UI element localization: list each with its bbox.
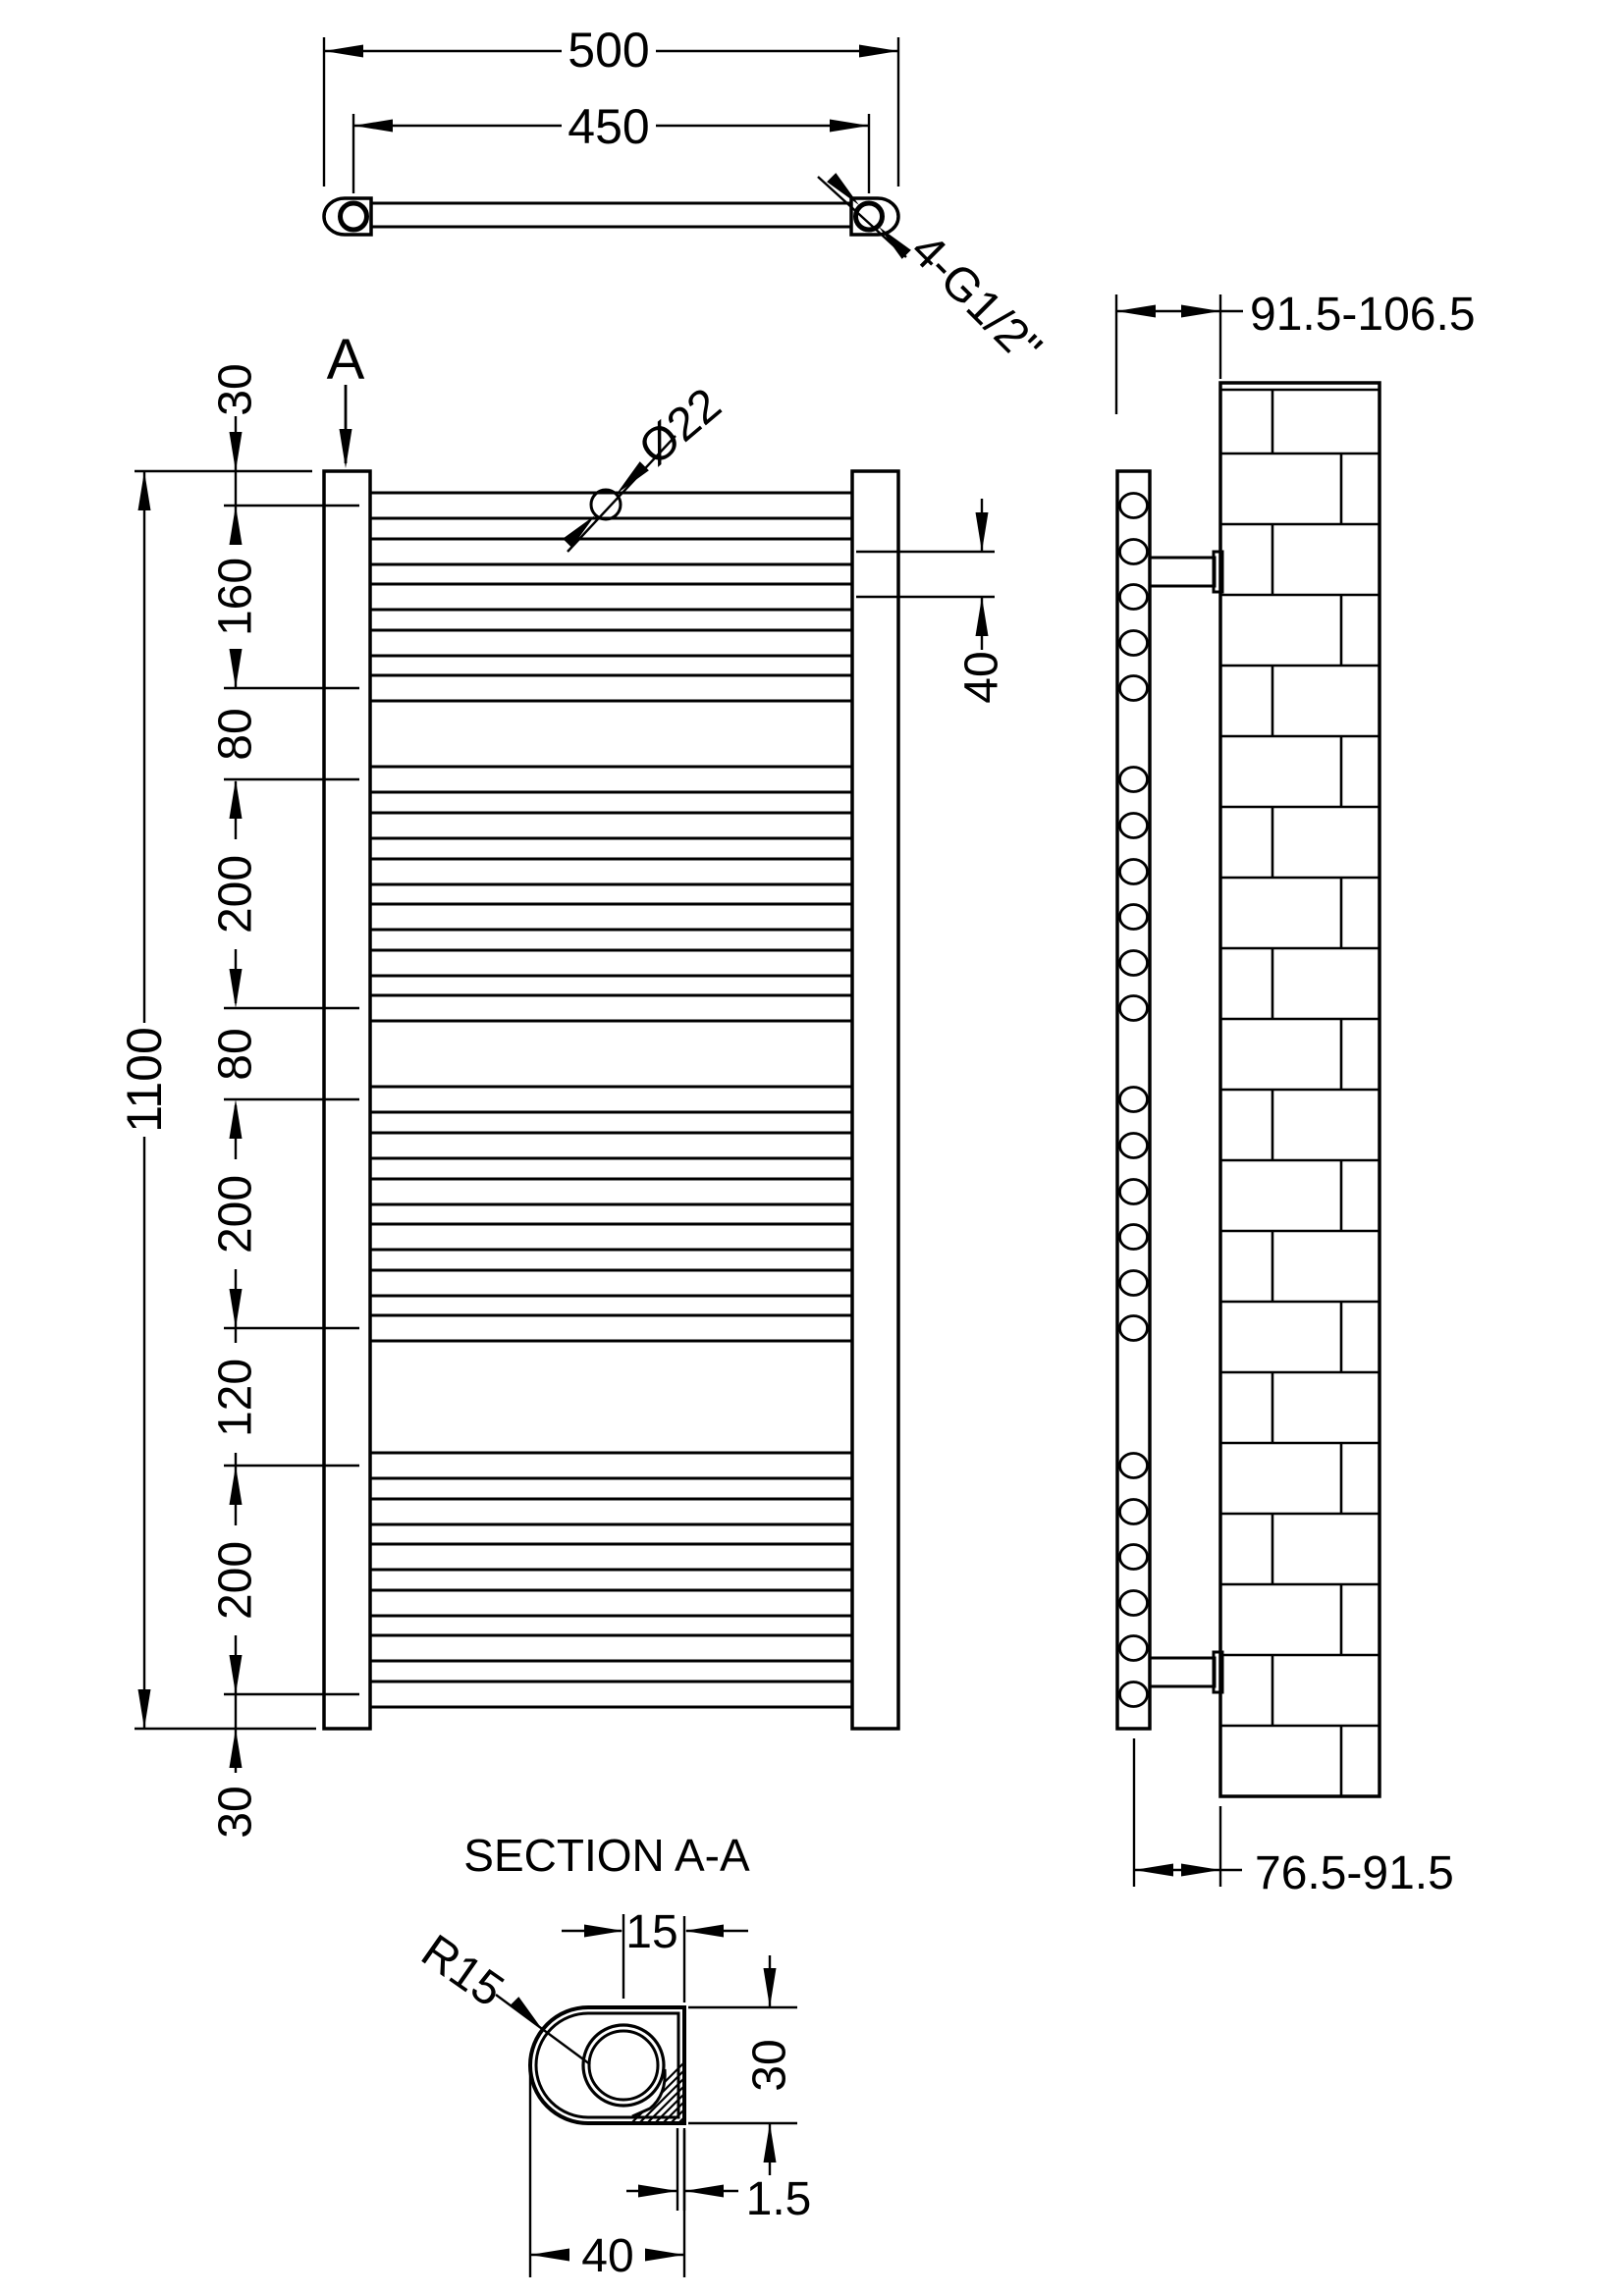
dim-tube-pitch: 40: [956, 651, 1008, 703]
dim-section-width: 40: [581, 2230, 633, 2282]
label-connections: 4-G1/2": [900, 224, 1051, 374]
chain-seg-0: 30: [210, 363, 262, 415]
chain-seg-4: 80: [210, 1028, 262, 1080]
dim-wall-to-centre: 76.5-91.5: [1255, 1847, 1454, 1899]
dim-overall-height: 1100: [117, 1027, 172, 1133]
front-view-tubes: [370, 493, 852, 1707]
brick-wall: [1220, 383, 1380, 1796]
dim-section-offset: 15: [625, 1906, 677, 1958]
chain-seg-8: 30: [210, 1786, 262, 1838]
chain-seg-7: 200: [210, 1541, 262, 1620]
chain-seg-1: 160: [210, 558, 262, 636]
chain-seg-2: 80: [210, 708, 262, 760]
label-tube-diameter: Ø22: [629, 379, 731, 476]
section-title: SECTION A-A: [463, 1830, 750, 1881]
chain-seg-6: 120: [210, 1359, 262, 1437]
technical-drawing-canvas: 500 450 4-G1/2" A Ø22 1100 40 30 160 80 …: [0, 0, 1623, 2296]
radiator-dimension-drawing: 500 450 4-G1/2" A Ø22 1100 40 30 160 80 …: [0, 0, 1623, 2296]
chain-seg-3: 200: [210, 855, 262, 934]
dim-overall-width: 500: [568, 23, 649, 78]
dim-wall-to-front: 91.5-106.5: [1250, 289, 1476, 341]
section-marker-letter: A: [327, 328, 365, 392]
dim-tapping-centres: 450: [568, 99, 649, 154]
front-view: [324, 385, 995, 1729]
dim-section-thickness: 1.5: [746, 2173, 812, 2225]
dim-section-radius: R15: [412, 1925, 514, 2017]
chain-seg-5: 200: [210, 1175, 262, 1254]
dimension-arrows: [138, 45, 1221, 2262]
dim-section-depth: 30: [744, 2039, 796, 2091]
